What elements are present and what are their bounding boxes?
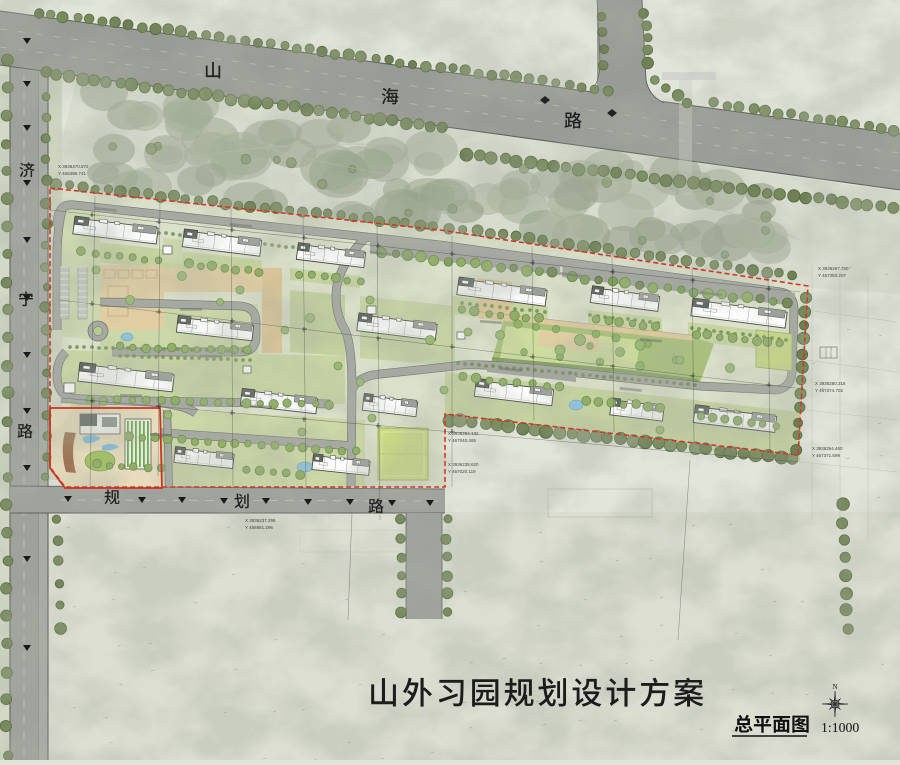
svg-text:X 3936284.132: X 3936284.132 (448, 431, 479, 436)
svg-text:Y 467371.599: Y 467371.599 (812, 453, 840, 458)
svg-text:Y 467040.495: Y 467040.495 (448, 438, 476, 443)
svg-text:Y 467374.702: Y 467374.702 (815, 388, 843, 393)
svg-text:X 3936280.316: X 3936280.316 (815, 381, 846, 386)
svg-text:1:1000: 1:1000 (821, 720, 859, 735)
svg-text:Y 466881.296: Y 466881.296 (245, 525, 273, 530)
svg-text:X 3936264.460: X 3936264.460 (812, 446, 843, 451)
svg-text:X 3936267.750: X 3936267.750 (818, 266, 849, 271)
svg-text:Y 467020.119: Y 467020.119 (448, 469, 476, 474)
svg-text:X 3936470.872: X 3936470.872 (58, 164, 89, 169)
svg-text:X 3936237.296: X 3936237.296 (245, 518, 276, 523)
svg-text:N: N (832, 683, 837, 691)
svg-text:Y 467383.207: Y 467383.207 (818, 273, 846, 278)
svg-text:X 3936238.620: X 3936238.620 (448, 462, 479, 467)
svg-text:Y 466396.741: Y 466396.741 (58, 171, 86, 176)
